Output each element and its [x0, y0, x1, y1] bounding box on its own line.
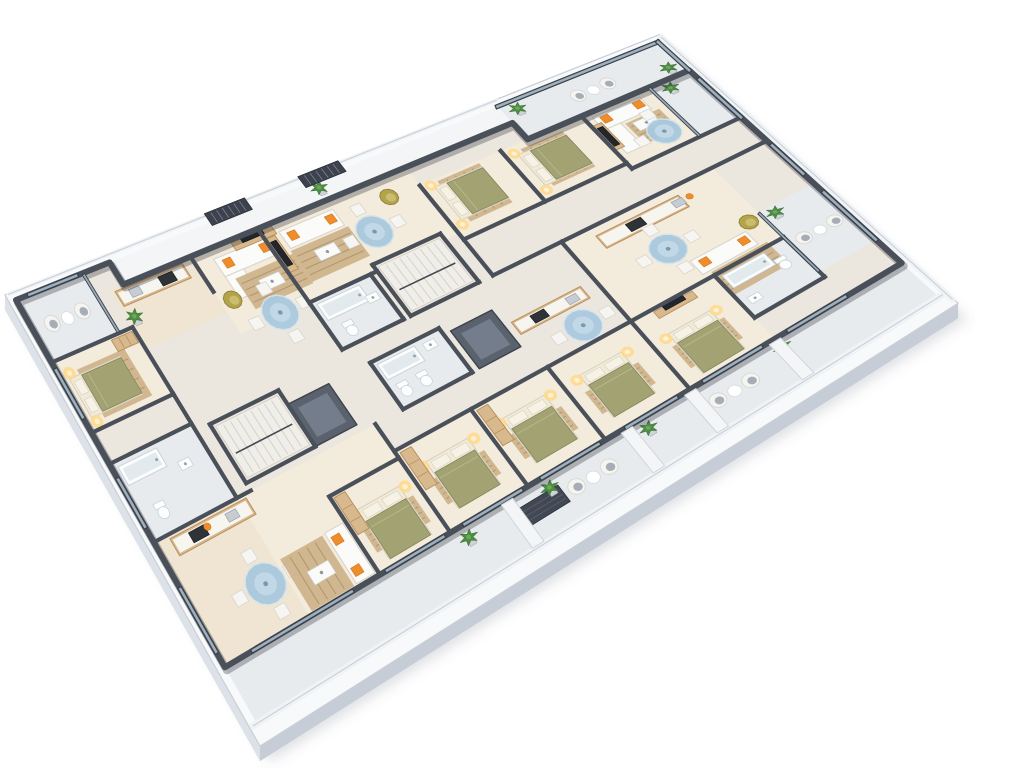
cooking-pot: [686, 194, 694, 199]
floor-plan-3d-render: [0, 0, 1024, 768]
round-table: [813, 225, 826, 235]
armchair: [739, 215, 759, 229]
round-table: [586, 471, 600, 484]
round-table: [728, 385, 743, 397]
isometric-apartment-floorplan: [0, 0, 1024, 768]
